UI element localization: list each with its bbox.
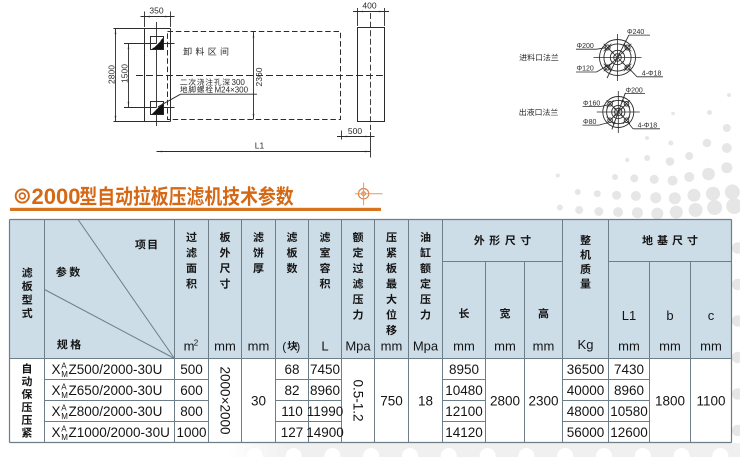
svg-text:): ): [296, 340, 300, 354]
svg-text:M: M: [61, 412, 68, 421]
svg-text:30: 30: [251, 393, 266, 408]
svg-text:L1: L1: [622, 308, 636, 323]
svg-text:L1: L1: [255, 141, 265, 151]
svg-text:500: 500: [348, 126, 362, 136]
svg-text:Kg: Kg: [578, 337, 594, 352]
svg-text:2000: 2000: [32, 184, 81, 209]
svg-text:Z1000/2000-30U: Z1000/2000-30U: [69, 425, 170, 440]
svg-text:c: c: [708, 308, 715, 323]
svg-text:750: 750: [380, 393, 403, 408]
svg-text:14900: 14900: [306, 425, 344, 440]
svg-text:8960: 8960: [310, 383, 340, 398]
svg-text:mm: mm: [248, 339, 270, 354]
svg-text:2: 2: [194, 339, 199, 348]
svg-text:500: 500: [180, 362, 203, 377]
svg-text:56000: 56000: [567, 425, 605, 440]
svg-text:X: X: [52, 362, 61, 377]
svg-text:40000: 40000: [567, 383, 605, 398]
svg-text:600: 600: [180, 383, 203, 398]
svg-text:14120: 14120: [445, 425, 483, 440]
svg-text:10580: 10580: [610, 404, 648, 419]
svg-text:b: b: [666, 308, 673, 323]
svg-text:8950: 8950: [449, 362, 479, 377]
svg-text:mm: mm: [618, 339, 640, 354]
svg-text:1000: 1000: [176, 425, 206, 440]
svg-text:7450: 7450: [310, 362, 340, 377]
svg-text:2000×2000: 2000×2000: [217, 367, 232, 435]
svg-text:2800: 2800: [106, 65, 116, 84]
svg-text:0.5-1.2: 0.5-1.2: [350, 379, 365, 421]
svg-text:(: (: [282, 340, 286, 354]
svg-text:2360: 2360: [254, 67, 264, 86]
svg-text:X: X: [52, 425, 61, 440]
svg-text:M: M: [61, 370, 68, 379]
svg-text:12100: 12100: [445, 404, 483, 419]
svg-text:X: X: [52, 404, 61, 419]
svg-text:M24×300: M24×300: [215, 85, 249, 94]
svg-text:mm: mm: [533, 339, 555, 354]
svg-text:2800: 2800: [490, 393, 520, 408]
svg-text:11990: 11990: [307, 404, 344, 419]
svg-text:68: 68: [284, 362, 299, 377]
svg-text:mm: mm: [494, 339, 516, 354]
svg-text:1500: 1500: [119, 64, 129, 83]
svg-text:8960: 8960: [614, 383, 644, 398]
svg-text:400: 400: [362, 0, 376, 10]
svg-text:7430: 7430: [614, 362, 644, 377]
svg-text:127: 127: [281, 425, 304, 440]
svg-text:mm: mm: [700, 339, 722, 354]
svg-text:Z800/2000-30U: Z800/2000-30U: [69, 404, 163, 419]
svg-text:800: 800: [180, 404, 203, 419]
svg-text:10480: 10480: [445, 383, 483, 398]
svg-text:mm: mm: [659, 339, 681, 354]
svg-text:mm: mm: [214, 339, 236, 354]
svg-text:36500: 36500: [567, 362, 605, 377]
svg-text:M: M: [61, 391, 68, 400]
svg-text:Mpa: Mpa: [413, 339, 439, 354]
svg-text:1100: 1100: [696, 393, 725, 408]
svg-text:Φ120: Φ120: [577, 66, 594, 73]
svg-text:X: X: [52, 383, 61, 398]
svg-text:350: 350: [149, 6, 163, 16]
svg-text:mm: mm: [453, 339, 475, 354]
svg-text:Z500/2000-30U: Z500/2000-30U: [69, 362, 163, 377]
svg-text:48000: 48000: [567, 404, 605, 419]
svg-text:1800: 1800: [655, 393, 685, 408]
svg-text:2300: 2300: [528, 393, 558, 408]
svg-text:82: 82: [284, 383, 299, 398]
svg-text:Z650/2000-30U: Z650/2000-30U: [69, 383, 163, 398]
svg-text:M: M: [61, 433, 68, 442]
svg-text:12600: 12600: [610, 425, 648, 440]
svg-text:mm: mm: [381, 339, 403, 354]
svg-text:110: 110: [281, 404, 303, 419]
svg-text:L: L: [321, 339, 328, 354]
svg-text:Mpa: Mpa: [345, 339, 371, 354]
svg-text:18: 18: [418, 393, 433, 408]
